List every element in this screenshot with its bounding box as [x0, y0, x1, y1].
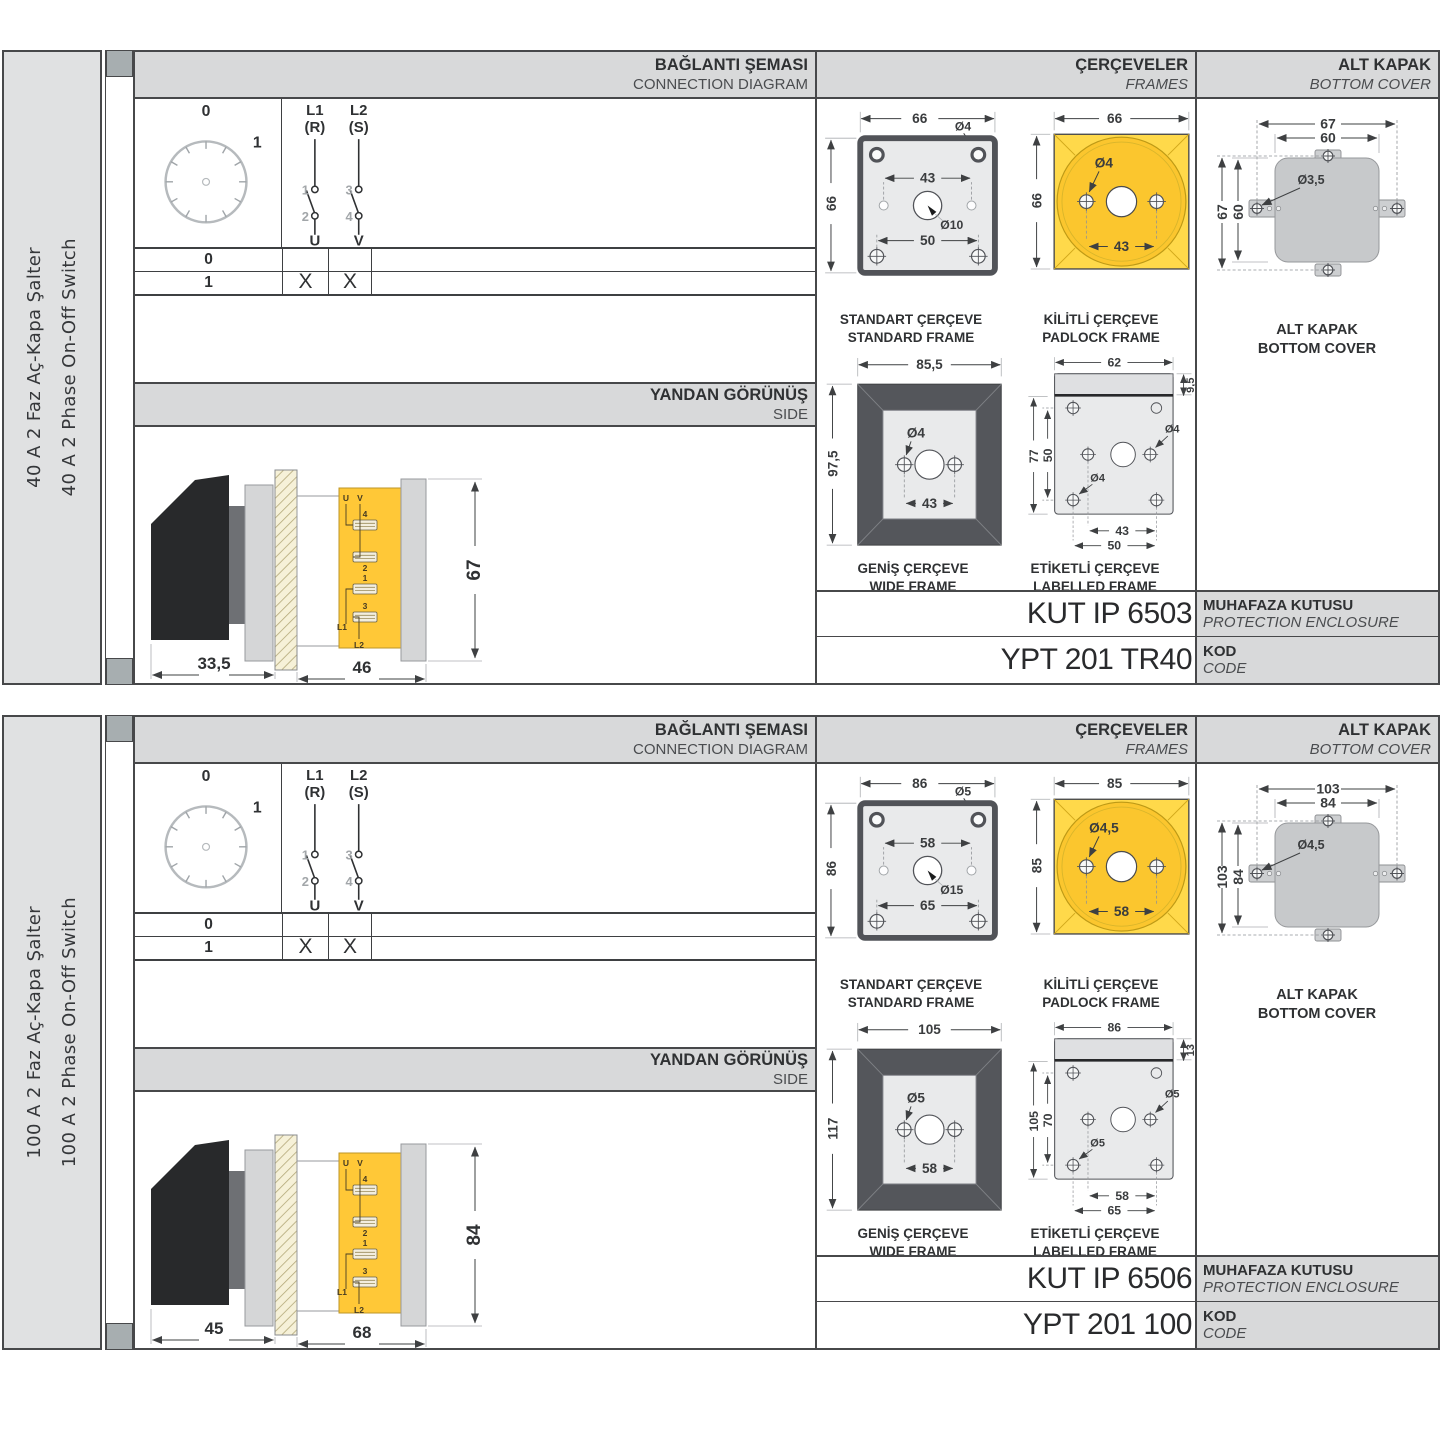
dim-height: 86 — [824, 861, 839, 877]
cell-v — [328, 914, 372, 936]
product-title-tr: 40 A 2 Faz Aç-Kapa Şalter — [24, 247, 45, 488]
pole1-contact-top: 1 — [302, 182, 309, 197]
header-cover-en: BOTTOM COVER — [1310, 76, 1431, 93]
row-label: 1 — [135, 937, 282, 959]
frame-label-en: STANDARD FRAME — [817, 329, 1005, 347]
dial-position-0: 0 — [202, 103, 211, 120]
header-connection-tr: BAĞLANTI ŞEMASI — [655, 56, 808, 76]
section-header-side: YANDAN GÖRÜNÜŞ SIDE — [135, 1047, 815, 1092]
pole2-contact-bottom: 4 — [346, 209, 354, 224]
dim-body: 68 — [353, 1323, 372, 1342]
frames-section: 66 Ø4 66 43 50 — [815, 99, 1195, 590]
side-view-drawing: U V 4 2 1 3 L1 L2 67 33,5 46 — [137, 428, 757, 683]
dim-height: 85 — [1029, 858, 1044, 874]
pole2-phase: (S) — [349, 119, 369, 136]
dim-holes-v: 50 — [1041, 448, 1055, 462]
padlock-frame-drawing: 66 66 Ø4 43 — [1007, 105, 1195, 308]
padlock-frame-label: KİLİTLİ ÇERÇEVE PADLOCK FRAME — [1007, 976, 1195, 1011]
frame-label-tr: ETİKETLİ ÇERÇEVE — [995, 1225, 1195, 1243]
table-row: 1 X X — [135, 936, 815, 959]
enclosure-row: KUT IP 6506 MUHAFAZA KUTUSU PROTECTION E… — [815, 1255, 1438, 1301]
dim-center-dia: Ø15 — [940, 883, 963, 897]
dim-width: 85 — [1107, 776, 1123, 791]
dim-inner-h: 60 — [1230, 204, 1246, 220]
pole1-line: L1 — [306, 767, 323, 784]
section-header-connection: BAĞLANTI ŞEMASI CONNECTION DIAGRAM — [135, 717, 815, 764]
pole2-contact-bottom: 4 — [346, 874, 354, 889]
terminal-label-u: U — [343, 493, 349, 503]
binder-tab-top — [106, 715, 133, 742]
row-label: 1 — [135, 272, 282, 294]
bottom-cover-label: ALT KAPAK BOTTOM COVER — [1197, 321, 1437, 359]
bottom-cover-drawing: 103 84 103 84 Ø4,5 — [1198, 778, 1436, 978]
binder-tab-top — [106, 50, 133, 77]
dim-hole-dia: Ø4,5 — [1297, 838, 1324, 852]
pole1-contact-top: 1 — [302, 847, 309, 862]
frame-label-tr: GENİŞ ÇERÇEVE — [817, 1225, 1009, 1243]
wide-frame-drawing: 105 117 Ø5 58 — [817, 1016, 1009, 1220]
pole-l1: L1 (R) 1 2 U — [302, 767, 326, 912]
bottom-cover-section: 67 60 67 60 Ø3,5 ALT KAPAK BOTTOM COVER — [1195, 99, 1438, 590]
pole1-line: L1 — [306, 102, 323, 119]
enclosure-label-tr: MUHAFAZA KUTUSU — [1203, 597, 1438, 614]
dim-hole-dia-low: Ø4 — [1090, 473, 1106, 485]
enclosure-label: MUHAFAZA KUTUSU PROTECTION ENCLOSURE — [1195, 592, 1438, 636]
dim-front: 33,5 — [197, 654, 230, 673]
dim-height: 77 — [1027, 449, 1041, 463]
cell-u: X — [282, 272, 328, 294]
pole2-line: L2 — [350, 767, 367, 784]
code-label: KOD CODE — [1195, 637, 1438, 683]
terminal-label-l2: L2 — [354, 1305, 364, 1315]
frame-label-tr: STANDART ÇERÇEVE — [817, 311, 1005, 329]
binder-strip — [105, 50, 133, 685]
row-label: 0 — [135, 914, 282, 936]
binder-tab-bottom — [106, 1323, 133, 1350]
mounting-panel-hatch — [275, 1135, 297, 1335]
frame-label-tr: KİLİTLİ ÇERÇEVE — [1007, 311, 1195, 329]
dim-inner-w: 60 — [1320, 130, 1336, 146]
terminal-label-4: 4 — [363, 1174, 368, 1184]
product-panel-40a: 40 A 2 Faz Aç-Kapa Şalter 40 A 2 Phase O… — [2, 50, 1443, 685]
header-frames-en: FRAMES — [1125, 76, 1188, 93]
dim-width: 85,5 — [916, 357, 943, 372]
header-cover-en: BOTTOM COVER — [1310, 741, 1431, 758]
terminal-label-2: 2 — [363, 1228, 368, 1238]
standard-frame-label: STANDART ÇERÇEVE STANDARD FRAME — [817, 976, 1005, 1011]
cell-u: X — [282, 937, 328, 959]
dim-hole-dia-mid: Ø4 — [1165, 424, 1181, 436]
bottom-cover-section: 103 84 103 84 Ø4,5 ALT KAPAK BOTTOM COVE… — [1195, 764, 1438, 1255]
cell-v: X — [328, 937, 372, 959]
dim-hole-dia: Ø5 — [955, 784, 971, 798]
terminal-label-v: V — [357, 1158, 363, 1168]
dim-screws: 65 — [1107, 1204, 1121, 1218]
dim-inner-h: 84 — [1230, 869, 1246, 885]
enclosure-label-tr: MUHAFAZA KUTUSU — [1203, 1262, 1438, 1279]
pole2-contact-top: 3 — [346, 182, 353, 197]
enclosure-label-en: PROTECTION ENCLOSURE — [1203, 1279, 1438, 1296]
section-header-cover: ALT KAPAK BOTTOM COVER — [1195, 52, 1438, 99]
header-cover-tr: ALT KAPAK — [1338, 56, 1431, 76]
header-cover-tr: ALT KAPAK — [1338, 721, 1431, 741]
header-side-en: SIDE — [773, 406, 808, 423]
cell-v — [328, 249, 372, 271]
cell-v: X — [328, 272, 372, 294]
dim-strip: 9,5 — [1185, 378, 1195, 393]
dim-holes: 58 — [922, 1161, 938, 1176]
section-header-connection: BAĞLANTI ŞEMASI CONNECTION DIAGRAM — [135, 52, 815, 99]
product-title-tr: 100 A 2 Faz Aç-Kapa Şalter — [24, 906, 45, 1159]
switch-handle — [151, 475, 229, 640]
switch-poles-drawing: L1 (R) 1 2 U L2 (S) 3 4 — [282, 99, 815, 247]
pole1-phase: (R) — [305, 784, 326, 801]
dim-width: 66 — [1107, 111, 1123, 126]
side-view-drawing: U V 4 2 1 3 L1 L2 84 45 68 — [137, 1093, 757, 1348]
cover-label-tr: ALT KAPAK — [1197, 321, 1437, 340]
frame-label-tr: GENİŞ ÇERÇEVE — [817, 560, 1009, 578]
section-header-frames: ÇERÇEVELER FRAMES — [815, 717, 1195, 764]
labelled-frame-drawing: 62 9,5 77 50 Ø4 — [995, 351, 1195, 558]
dim-hole-dia: Ø4 — [1095, 155, 1114, 170]
row-label: 0 — [135, 249, 282, 271]
terminal-label-2: 2 — [363, 563, 368, 573]
dim-height: 117 — [825, 1118, 840, 1140]
datasheet-main: BAĞLANTI ŞEMASI CONNECTION DIAGRAM ÇERÇE… — [133, 50, 1440, 685]
dim-width: 105 — [918, 1022, 941, 1037]
dim-hole-dia-mid: Ø5 — [1165, 1089, 1180, 1101]
labelled-frame-drawing: 86 13 105 70 Ø5 — [995, 1016, 1195, 1223]
pole1-phase: (R) — [305, 119, 326, 136]
dim-body: 46 — [353, 658, 372, 677]
padlock-frame-drawing: 85 85 Ø4,5 58 — [1007, 770, 1195, 973]
standard-frame-label: STANDART ÇERÇEVE STANDARD FRAME — [817, 311, 1005, 346]
dim-holes: 43 — [1114, 239, 1130, 254]
dim-holes-h: 43 — [1115, 524, 1129, 538]
padlock-frame-label: KİLİTLİ ÇERÇEVE PADLOCK FRAME — [1007, 311, 1195, 346]
dim-height: 105 — [1027, 1111, 1041, 1132]
pole1-contact-bottom: 2 — [302, 209, 309, 224]
dim-hole-dia: Ø4 — [955, 119, 971, 133]
standard-frame-drawing: 66 Ø4 66 43 50 — [817, 105, 1005, 308]
cover-label-en: BOTTOM COVER — [1197, 1005, 1437, 1024]
section-header-cover: ALT KAPAK BOTTOM COVER — [1195, 717, 1438, 764]
cell-u — [282, 914, 328, 936]
code-row: YPT 201 100 KOD CODE — [815, 1301, 1438, 1348]
header-side-tr: YANDAN GÖRÜNÜŞ — [650, 386, 808, 406]
switch-handle — [151, 1140, 229, 1305]
dial-position-0: 0 — [202, 768, 211, 785]
terminal-label-u: U — [343, 1158, 349, 1168]
product-panel-100a: 100 A 2 Faz Aç-Kapa Şalter 100 A 2 Phase… — [2, 715, 1443, 1350]
dim-screws: 50 — [1107, 539, 1121, 553]
catalog-page: 40 A 2 Faz Aç-Kapa Şalter 40 A 2 Phase O… — [0, 0, 1445, 1445]
frame-label-en: PADLOCK FRAME — [1007, 329, 1195, 347]
terminal-label-l1: L1 — [337, 1287, 347, 1297]
frame-label-tr: STANDART ÇERÇEVE — [817, 976, 1005, 994]
pole2-contact-top: 3 — [346, 847, 353, 862]
dim-hole-dia: Ø4,5 — [1089, 820, 1119, 835]
dim-screws: 50 — [920, 233, 936, 248]
frame-label-en: STANDARD FRAME — [817, 994, 1005, 1012]
table-row: 0 — [135, 249, 815, 271]
product-title-sidebar: 100 A 2 Faz Aç-Kapa Şalter 100 A 2 Phase… — [2, 715, 102, 1350]
product-title-en: 100 A 2 Phase On-Off Switch — [59, 897, 80, 1167]
mounting-panel-hatch — [275, 470, 297, 670]
dim-screws: 65 — [920, 898, 936, 913]
dim-width: 66 — [912, 111, 928, 126]
dim-height: 97,5 — [825, 450, 840, 477]
terminal-label-3: 3 — [363, 601, 368, 611]
dial-drawing: 0 1 — [135, 764, 280, 910]
header-side-tr: YANDAN GÖRÜNÜŞ — [650, 1051, 808, 1071]
switching-table: 0 1 X X — [135, 912, 815, 961]
pole-l2: L2 (S) 3 4 V — [346, 767, 369, 912]
terminal-label-l1: L1 — [337, 622, 347, 632]
dim-height: 66 — [824, 196, 839, 212]
dim-front: 45 — [205, 1319, 224, 1338]
dim-holes-h: 58 — [1115, 1189, 1129, 1203]
pole2-out: V — [354, 898, 364, 912]
dim-holes: 43 — [922, 496, 938, 511]
datasheet-main: BAĞLANTI ŞEMASI CONNECTION DIAGRAM ÇERÇE… — [133, 715, 1440, 1350]
dim-height: 84 — [464, 1224, 485, 1246]
switch-poles-drawing: L1 (R) 1 2 U L2 (S) 3 4 — [282, 764, 815, 912]
header-connection-en: CONNECTION DIAGRAM — [633, 76, 808, 93]
pole2-out: V — [354, 233, 364, 247]
product-title-sidebar: 40 A 2 Faz Aç-Kapa Şalter 40 A 2 Phase O… — [2, 50, 102, 685]
pole-l1: L1 (R) 1 2 U — [302, 102, 326, 247]
dim-holes: 58 — [1114, 904, 1130, 919]
dim-width: 86 — [1107, 1020, 1121, 1034]
switch-body — [339, 1153, 401, 1313]
wide-frame-drawing: 85,5 97,5 Ø4 43 — [817, 351, 1009, 555]
dim-hole-dia: Ø5 — [907, 1090, 926, 1105]
dim-height: 67 — [464, 559, 485, 580]
dim-hole-dia-low: Ø5 — [1090, 1138, 1105, 1150]
dim-height: 66 — [1029, 193, 1044, 209]
cover-label-en: BOTTOM COVER — [1197, 340, 1437, 359]
table-row: 0 — [135, 914, 815, 936]
pole1-contact-bottom: 2 — [302, 874, 309, 889]
section-header-side: YANDAN GÖRÜNÜŞ SIDE — [135, 382, 815, 427]
frame-label-en: PADLOCK FRAME — [1007, 994, 1195, 1012]
table-row: 1 X X — [135, 271, 815, 294]
product-code: YPT 201 TR40 — [817, 637, 1195, 683]
standard-frame-drawing: 86 Ø5 86 58 65 — [817, 770, 1005, 973]
frame-label-tr: KİLİTLİ ÇERÇEVE — [1007, 976, 1195, 994]
enclosure-label-en: PROTECTION ENCLOSURE — [1203, 614, 1438, 631]
dim-outer-h: 103 — [1214, 865, 1230, 889]
pole-l2: L2 (S) 3 4 V — [346, 102, 369, 247]
cover-label-tr: ALT KAPAK — [1197, 986, 1437, 1005]
code-label-tr: KOD — [1203, 643, 1438, 660]
binder-tab-bottom — [106, 658, 133, 685]
dim-strip: 13 — [1185, 1044, 1195, 1056]
pole2-phase: (S) — [349, 784, 369, 801]
enclosure-code: KUT IP 6506 — [817, 1257, 1195, 1301]
pole2-line: L2 — [350, 102, 367, 119]
switch-body — [339, 488, 401, 648]
cell-u — [282, 249, 328, 271]
terminal-label-l2: L2 — [354, 640, 364, 650]
dial-drawing: 0 1 — [135, 99, 280, 245]
dim-holes: 58 — [920, 836, 936, 851]
terminal-label-1: 1 — [363, 573, 368, 583]
code-label-en: CODE — [1203, 660, 1438, 677]
enclosure-code: KUT IP 6503 — [817, 592, 1195, 636]
dial-box: 0 1 — [135, 764, 282, 912]
dim-holes: 43 — [920, 171, 936, 186]
enclosure-row: KUT IP 6503 MUHAFAZA KUTUSU PROTECTION E… — [815, 590, 1438, 636]
header-side-en: SIDE — [773, 1071, 808, 1088]
dial-box: 0 1 — [135, 99, 282, 247]
code-label-en: CODE — [1203, 1325, 1438, 1342]
binder-strip — [105, 715, 133, 1350]
dim-outer-h: 67 — [1214, 204, 1230, 220]
dim-hole-dia: Ø4 — [907, 425, 926, 440]
dial-position-1: 1 — [253, 799, 262, 816]
dim-hole-dia: Ø3,5 — [1297, 173, 1324, 187]
dim-width: 86 — [912, 776, 928, 791]
bottom-cover-drawing: 67 60 67 60 Ø3,5 — [1198, 113, 1436, 313]
header-frames-tr: ÇERÇEVELER — [1075, 56, 1188, 76]
terminal-label-1: 1 — [363, 1238, 368, 1248]
header-connection-tr: BAĞLANTI ŞEMASI — [655, 721, 808, 741]
pole1-out: U — [309, 233, 320, 247]
header-connection-en: CONNECTION DIAGRAM — [633, 741, 808, 758]
dim-holes-v: 70 — [1041, 1113, 1055, 1127]
frames-section: 86 Ø5 86 58 65 — [815, 764, 1195, 1255]
dim-center-dia: Ø10 — [940, 218, 963, 232]
terminal-label-v: V — [357, 493, 363, 503]
section-header-frames: ÇERÇEVELER FRAMES — [815, 52, 1195, 99]
dim-inner-w: 84 — [1320, 795, 1336, 811]
bottom-cover-label: ALT KAPAK BOTTOM COVER — [1197, 986, 1437, 1024]
terminal-label-4: 4 — [363, 509, 368, 519]
header-frames-en: FRAMES — [1125, 741, 1188, 758]
product-title-en: 40 A 2 Phase On-Off Switch — [59, 238, 80, 496]
dim-width: 62 — [1107, 355, 1121, 369]
frame-label-tr: ETİKETLİ ÇERÇEVE — [995, 560, 1195, 578]
dial-position-1: 1 — [253, 134, 262, 151]
code-label-tr: KOD — [1203, 1308, 1438, 1325]
terminal-label-3: 3 — [363, 1266, 368, 1276]
pole1-out: U — [309, 898, 320, 912]
product-code: YPT 201 100 — [817, 1302, 1195, 1348]
enclosure-label: MUHAFAZA KUTUSU PROTECTION ENCLOSURE — [1195, 1257, 1438, 1301]
switching-table: 0 1 X X — [135, 247, 815, 296]
code-row: YPT 201 TR40 KOD CODE — [815, 636, 1438, 683]
header-frames-tr: ÇERÇEVELER — [1075, 721, 1188, 741]
code-label: KOD CODE — [1195, 1302, 1438, 1348]
